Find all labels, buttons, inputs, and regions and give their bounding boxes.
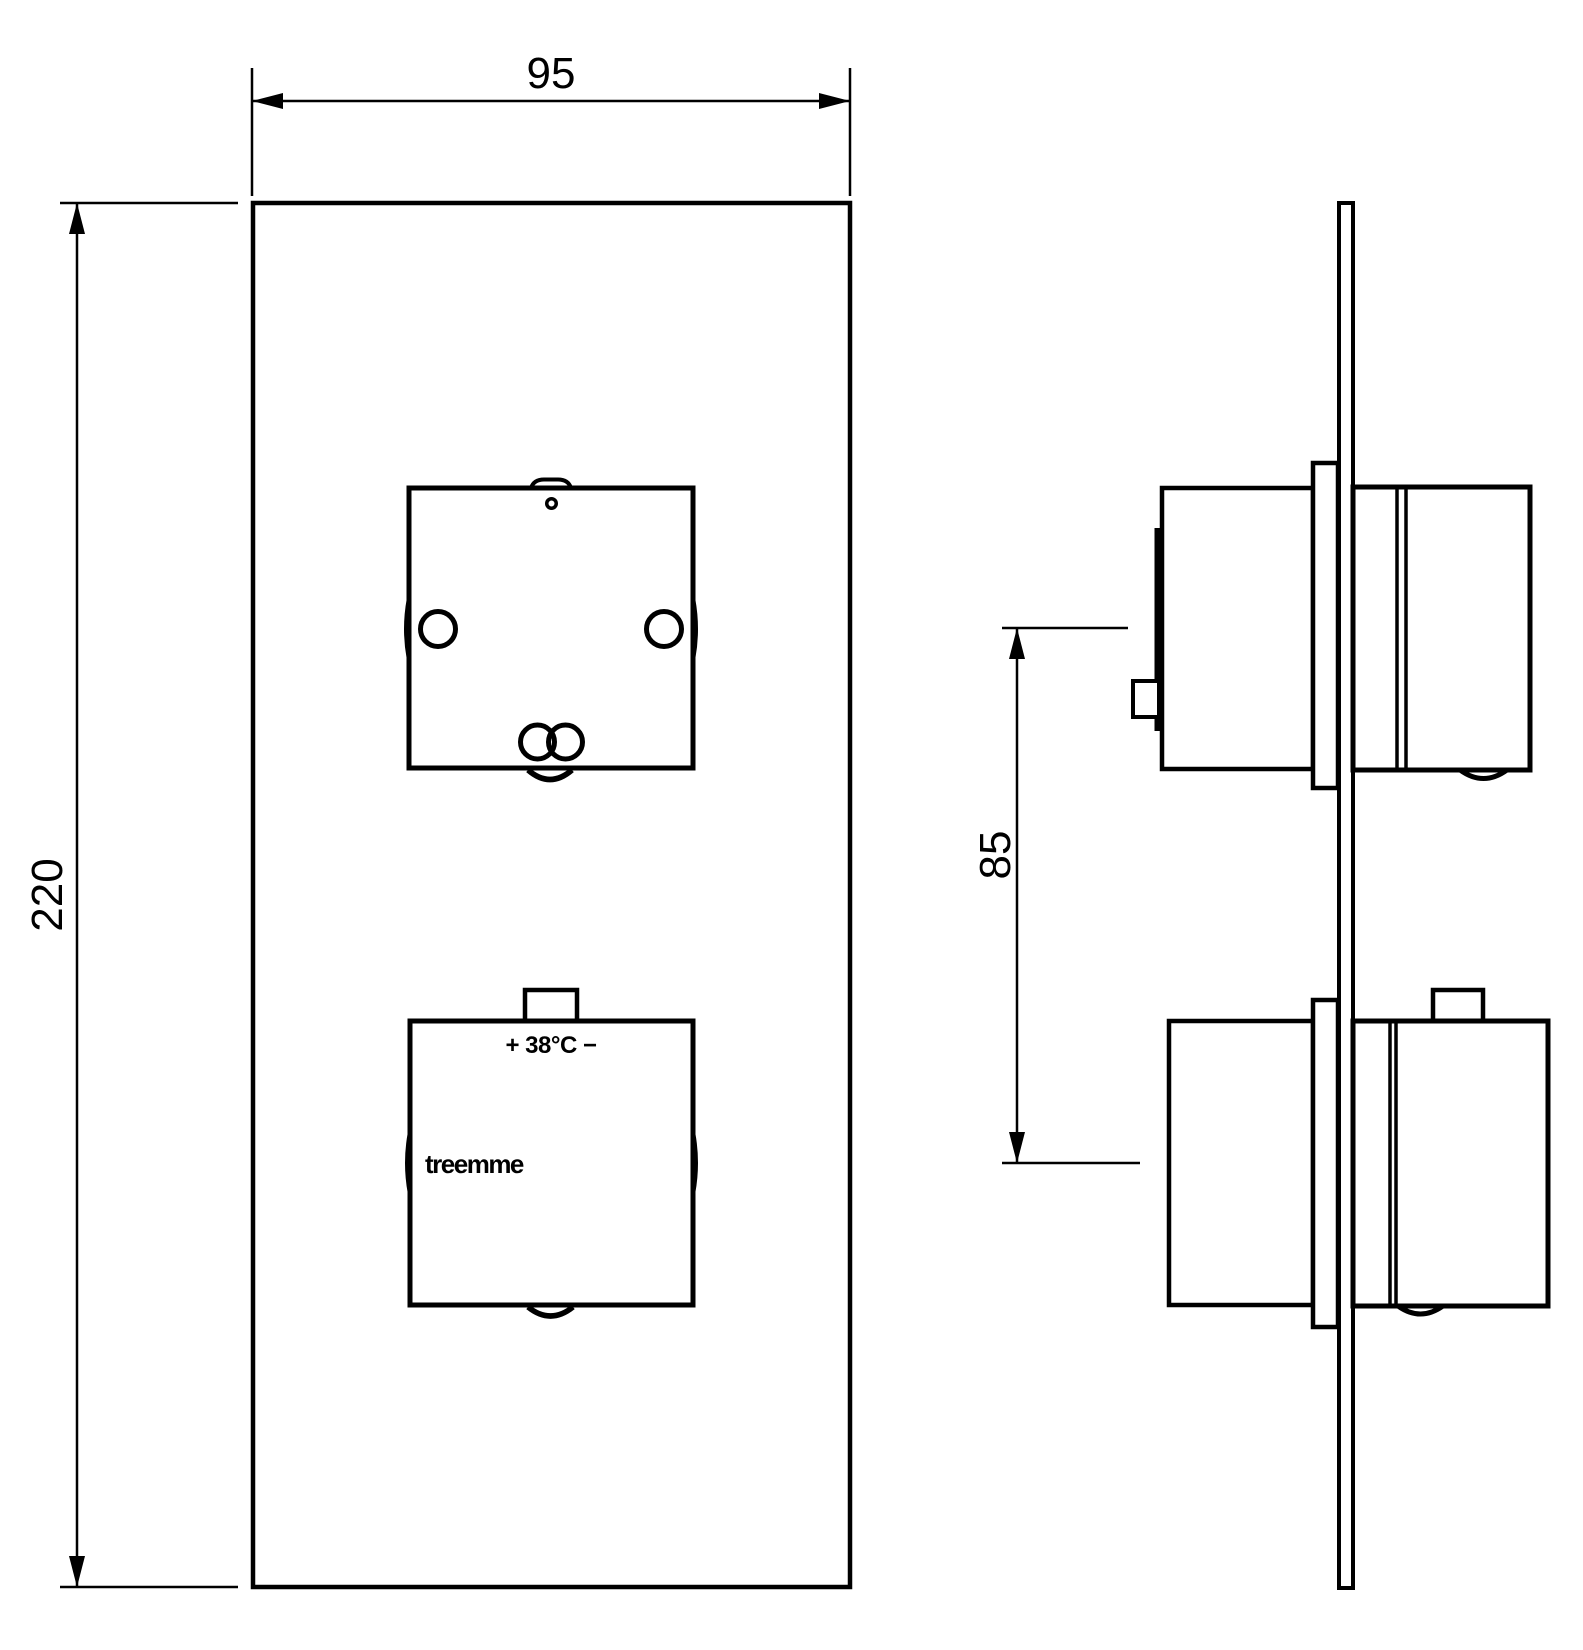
side-view — [1133, 203, 1548, 1588]
upper-valve-body — [1162, 488, 1313, 769]
spacing-dim-value: 85 — [971, 831, 1020, 880]
front-view: + 38°C − treemme — [253, 203, 850, 1587]
height-dimension-220: 220 — [23, 203, 238, 1587]
width-arrow-right — [819, 93, 850, 109]
lower-valve-body — [1169, 1021, 1313, 1305]
front-plate-outline — [253, 203, 850, 1587]
width-dim-value: 95 — [527, 49, 576, 98]
height-dim-value: 220 — [23, 858, 72, 931]
upper-collar-flange — [1313, 463, 1338, 788]
brand-logo-text: treemme — [425, 1149, 524, 1179]
height-arrow-top — [69, 203, 85, 234]
temperature-label: + 38°C − — [506, 1032, 597, 1059]
width-arrow-left — [252, 93, 283, 109]
side-plate-edge — [1339, 203, 1353, 1588]
drawing-svg: + 38°C − treemme 95 220 — [0, 0, 1583, 1650]
spacing-dimension-85: 85 — [971, 628, 1140, 1163]
lower-knob-top-tab — [1433, 990, 1483, 1021]
height-arrow-bottom — [69, 1556, 85, 1587]
spacing-arrow-top — [1009, 628, 1025, 659]
upper-valve-stop-button — [1133, 681, 1159, 717]
technical-drawing-page: + 38°C − treemme 95 220 — [0, 0, 1583, 1650]
upper-knob-profile — [1353, 487, 1530, 770]
lower-knob-profile — [1353, 1021, 1548, 1306]
lower-handle-top-tab — [525, 990, 577, 1021]
lower-collar-flange — [1313, 1000, 1338, 1327]
spacing-arrow-bottom — [1009, 1132, 1025, 1163]
upper-handle-square — [409, 488, 693, 768]
width-dimension-95: 95 — [252, 49, 850, 196]
